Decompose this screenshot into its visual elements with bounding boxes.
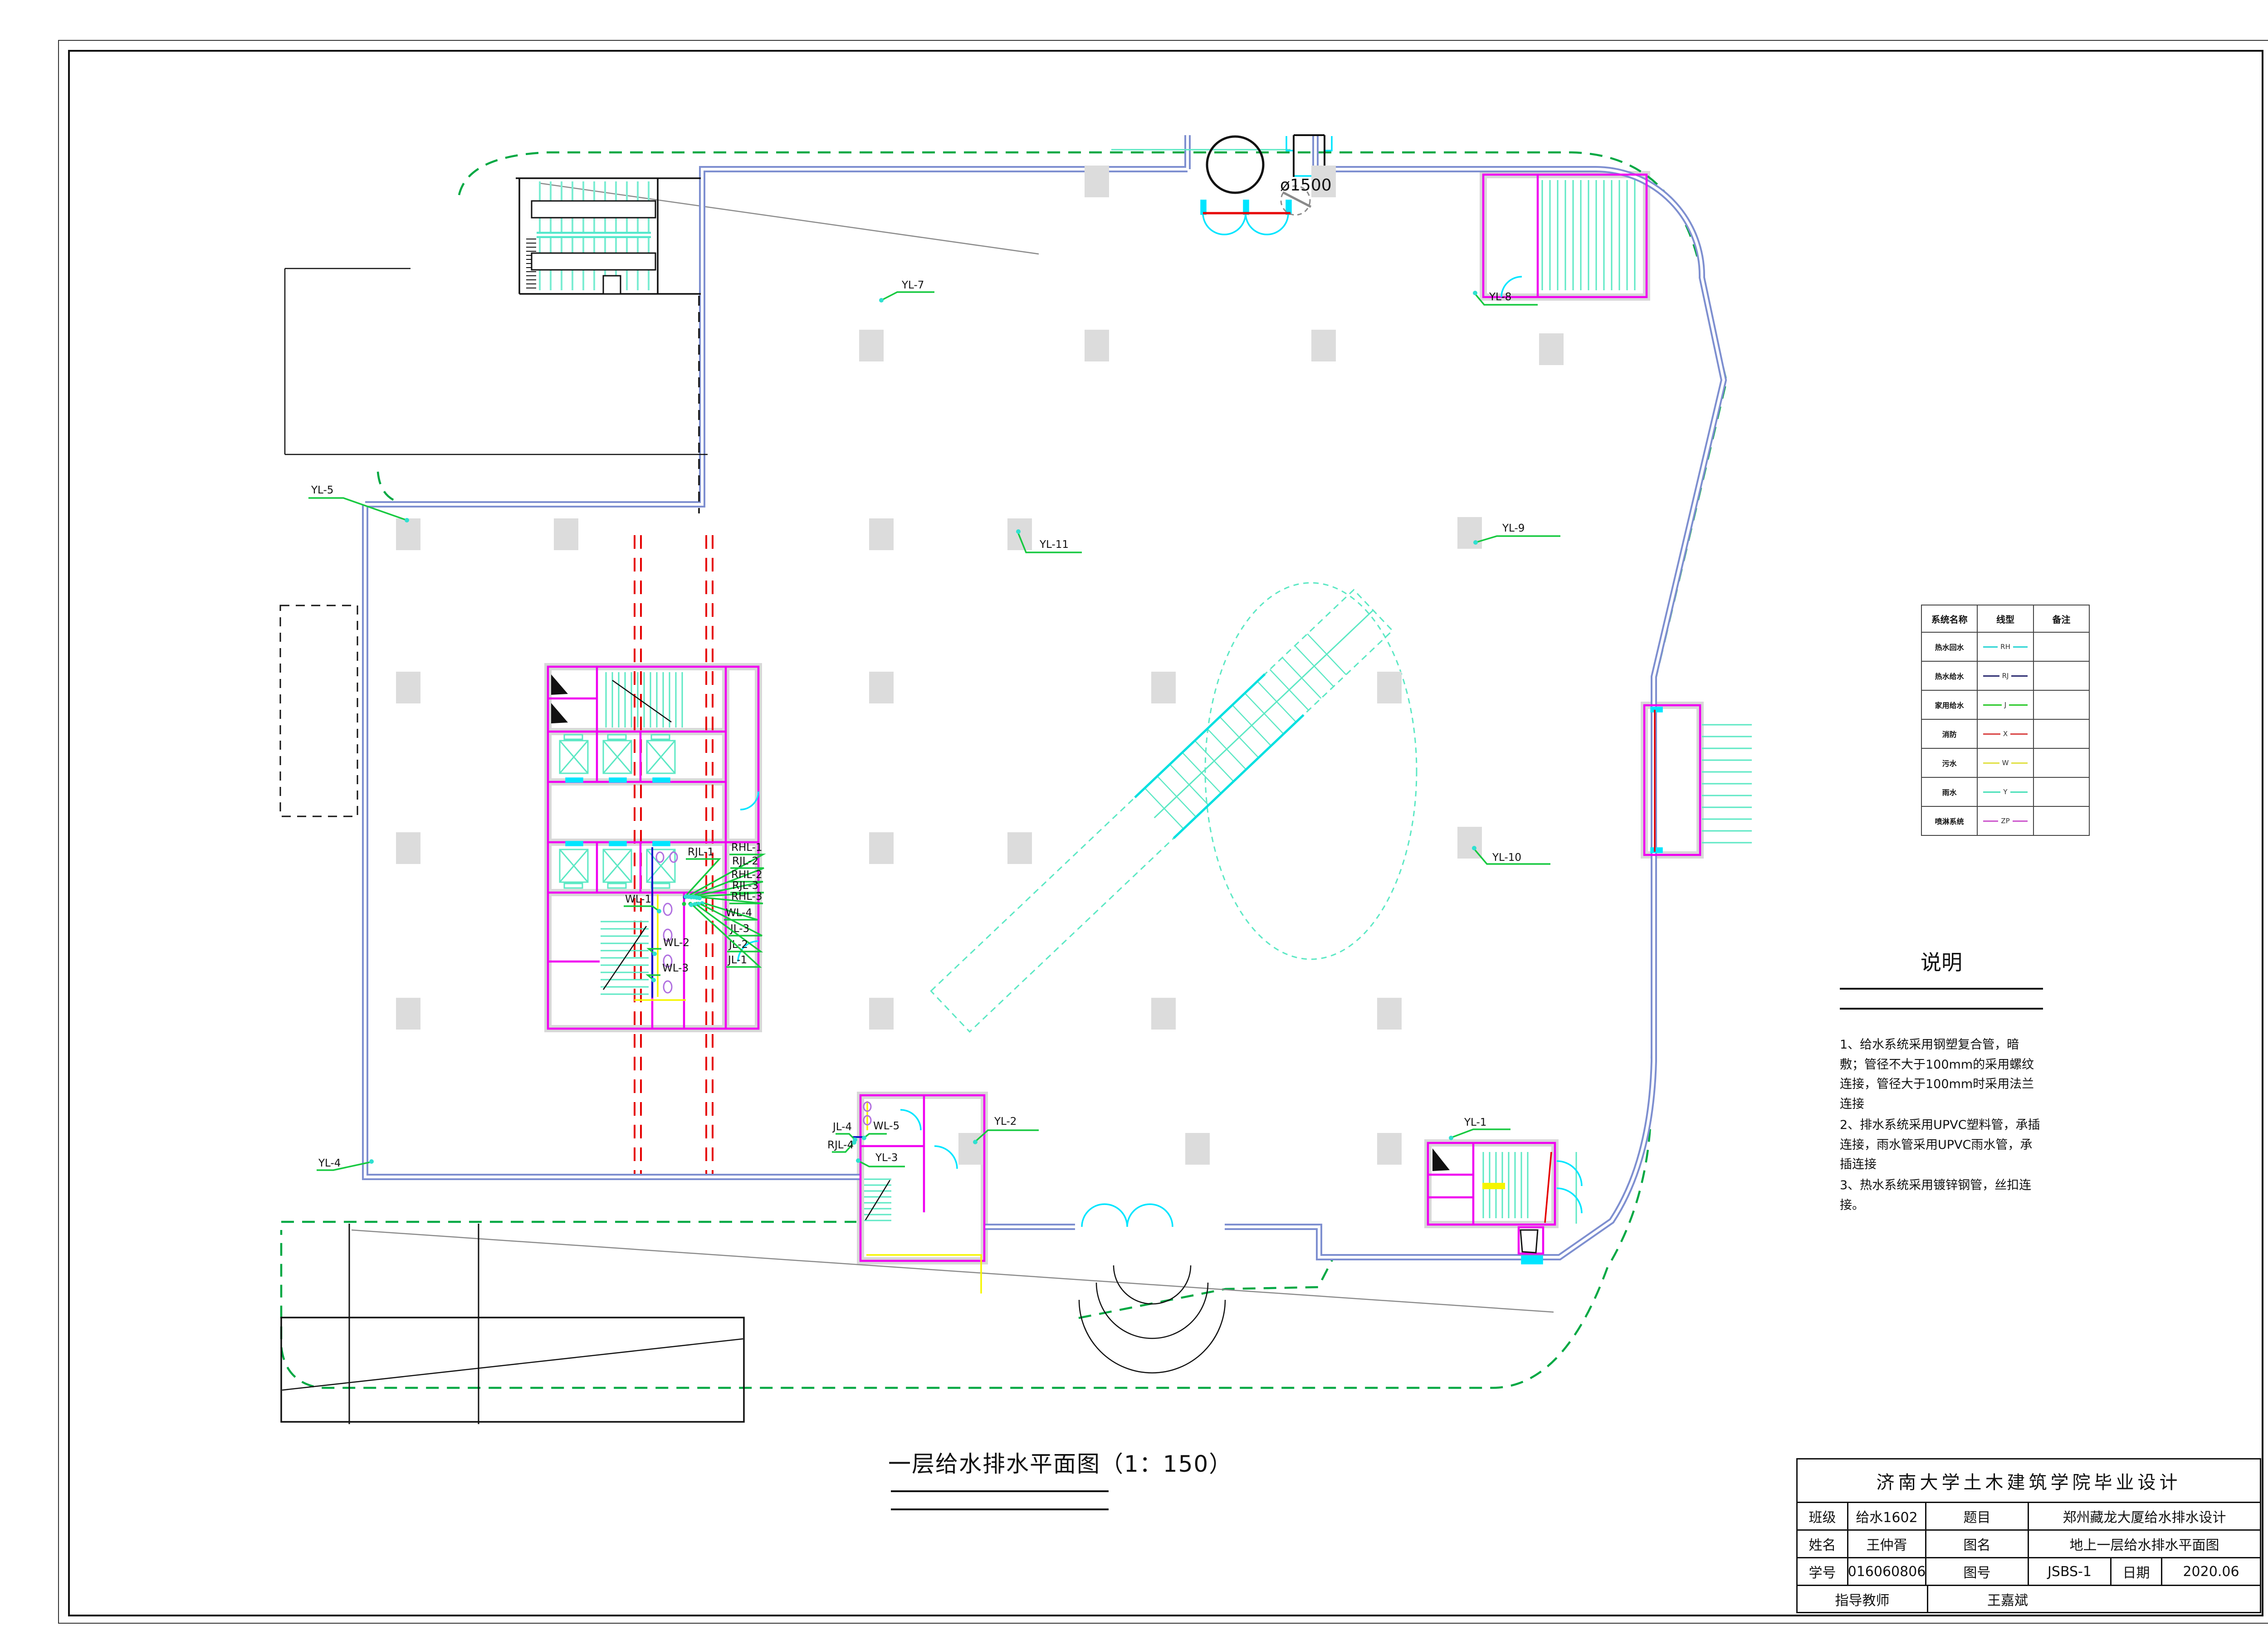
legend-line-segment [1983, 820, 1998, 822]
legend-remark [2033, 632, 2089, 661]
legend-line-segment [2013, 820, 2028, 822]
legend-line-segment [1983, 791, 2000, 793]
legend-line-sample: Y [1977, 777, 2033, 806]
legend-line-segment [2009, 704, 2027, 706]
sheetname-value: 地上一层给水排水平面图 [2029, 1531, 2260, 1557]
studentid-value: 20160608068 [1848, 1558, 1926, 1585]
structural-column [1151, 998, 1176, 1030]
structural-column [1007, 518, 1032, 550]
label-leader-line [1476, 536, 1560, 542]
legend-line-code: Y [2003, 788, 2007, 796]
structural-column [1007, 832, 1032, 864]
plan-labels: YL-7YL-5YL-11YL-9YL-10YL-8YL-1YL-2YL-3YL… [308, 279, 1560, 1170]
sheetname-label: 图名 [1926, 1531, 2029, 1557]
legend-row: 喷淋系统ZP [1921, 806, 2089, 835]
site-gray-lines [352, 183, 1554, 1312]
legend-system-name: 热水回水 [1921, 632, 1977, 661]
legend-line-segment [1983, 675, 1999, 677]
label-leader-line [836, 1134, 855, 1139]
legend-line-segment [2013, 646, 2028, 648]
riser-dot [369, 1159, 374, 1164]
legend-system-name: 消防 [1921, 719, 1977, 748]
riser-dot [1473, 291, 1477, 295]
legend-line-segment [2011, 762, 2027, 764]
pipe-riser-label: RHL-3 [731, 891, 763, 903]
notes-title: 说明 [1840, 946, 2043, 976]
legend-line-segment [2011, 675, 2027, 677]
drawing-title: 一层给水排水平面图（1：150） [888, 1446, 1115, 1479]
legend-remark [2033, 690, 2089, 719]
pipe-riser-label: YL-2 [994, 1116, 1017, 1127]
legend-header-system: 系统名称 [1921, 605, 1977, 632]
red-details [1203, 213, 1655, 1223]
structural-column [1151, 672, 1176, 703]
structural-column [1311, 330, 1336, 361]
pipe-riser-label: RJL-1 [688, 846, 714, 858]
interior-walls [548, 175, 1700, 1261]
legend-line-segment [2010, 733, 2028, 735]
pipe-riser-label: YL-11 [1039, 539, 1069, 551]
pipe-riser-label: YL-10 [1492, 852, 1521, 864]
structural-column [1185, 1133, 1210, 1165]
legend-row: 热水给水RJ [1921, 661, 2089, 690]
legend-line-segment [2010, 791, 2028, 793]
pipe-riser-label: RJL-4 [827, 1139, 854, 1151]
title-block-school: 济南大学土木建筑学院毕业设计 [1798, 1459, 2260, 1503]
elevators [560, 735, 675, 888]
riser-dot [652, 952, 657, 956]
name-value: 王仲胥 [1848, 1531, 1926, 1557]
legend-line-sample: W [1977, 748, 2033, 777]
structural-column [1377, 1133, 1402, 1165]
notes-rule-1 [1840, 988, 2043, 990]
legend-system-name: 热水给水 [1921, 661, 1977, 690]
legend-line-code: ZP [2001, 817, 2009, 825]
atrium-ellipse [1205, 583, 1417, 959]
pipe-riser-label: JL-3 [729, 923, 749, 935]
structural-column [396, 672, 420, 703]
name-label: 姓名 [1798, 1531, 1848, 1557]
legend-line-sample: X [1977, 719, 2033, 748]
legend-line-code: W [2002, 759, 2009, 767]
legend-row: 污水W [1921, 748, 2089, 777]
note-item: 3、热水系统采用镀锌钢管，丝扣连接。 [1840, 1176, 2043, 1215]
structural-column [1085, 166, 1109, 197]
pipe-riser-label: YL-3 [875, 1152, 898, 1164]
riser-dot [689, 903, 694, 907]
pipe-riser-label: WL-5 [873, 1120, 899, 1132]
advisor-label: 指导教师 [1798, 1586, 1928, 1612]
topic-value: 郑州藏龙大厦给水排水设计 [2029, 1503, 2260, 1529]
structural-column [859, 330, 884, 361]
pipe-riser-label: YL-1 [1464, 1117, 1486, 1128]
title-underline-1 [891, 1490, 1109, 1492]
legend-line-sample: ZP [1977, 806, 2033, 835]
legend-line-code: RJ [2002, 672, 2009, 680]
site-boundary [281, 152, 1726, 1388]
pipe-riser-label: JL-4 [832, 1121, 852, 1133]
pipe-riser-label: RJL-3 [732, 880, 758, 892]
class-label: 班级 [1798, 1503, 1848, 1529]
pipe-riser-label: YL-9 [1502, 522, 1525, 534]
structural-column [396, 998, 420, 1030]
class-value: 给水1602 [1848, 1503, 1926, 1529]
legend-row: 热水回水RH [1921, 632, 2089, 661]
topic-label: 题目 [1926, 1503, 2029, 1529]
riser-dot [856, 1158, 860, 1163]
title-block: 济南大学土木建筑学院毕业设计 班级 给水1602 题目 郑州藏龙大厦给水排水设计… [1796, 1458, 2261, 1613]
legend-remark [2033, 719, 2089, 748]
structural-column [396, 518, 420, 550]
riser-dot [1449, 1136, 1453, 1140]
legend-header-remark: 备注 [2033, 605, 2089, 632]
entrance-diameter-label: ø1500 [1280, 176, 1332, 195]
structural-column [554, 518, 578, 550]
riser-dot [879, 298, 884, 303]
annex-structures [280, 178, 744, 1424]
structural-column [1377, 672, 1402, 703]
label-leader-line [1452, 1129, 1510, 1137]
date-value: 2020.06 [2162, 1558, 2260, 1585]
structural-column [869, 998, 894, 1030]
legend-system-name: 喷淋系统 [1921, 806, 1977, 835]
riser-dot [973, 1140, 978, 1144]
sheetno-value: JSBS-1 [2029, 1558, 2112, 1585]
riser-dot [862, 1136, 866, 1140]
structural-column [396, 832, 420, 864]
riser-dot [651, 978, 656, 982]
structural-column [869, 832, 894, 864]
pipe-riser-label: YL-7 [901, 279, 924, 291]
riser-dot [405, 518, 409, 522]
notes-rule-2 [1840, 1008, 2043, 1010]
structural-column [869, 518, 894, 550]
stairs-and-treads [601, 150, 1752, 1224]
pipe-riser-label: WL-3 [662, 962, 689, 974]
legend-line-code: X [2003, 730, 2008, 738]
label-leader-line [865, 1134, 887, 1137]
date-label: 日期 [2112, 1558, 2162, 1585]
exterior-walls [365, 135, 1724, 1257]
notes-list: 1、给水系统采用钢塑复合管，暗敷；管径不大于100mm的采用螺纹连接，管径大于1… [1840, 1035, 2043, 1215]
notes-panel: 说明 1、给水系统采用钢塑复合管，暗敷；管径不大于100mm的采用螺纹连接，管径… [1840, 946, 2043, 1216]
riser-dot [1016, 529, 1021, 534]
pipe-riser-label: YL-4 [318, 1157, 341, 1169]
legend-line-sample: J [1977, 690, 2033, 719]
legend-line-sample: RH [1977, 632, 2033, 661]
pipe-riser-label: RJL-2 [732, 855, 758, 867]
pipe-riser-label: YL-5 [311, 484, 333, 496]
legend-line-code: RH [2000, 643, 2010, 651]
legend-line-sample: RJ [1977, 661, 2033, 690]
riser-dot [1473, 540, 1478, 545]
advisor-value: 王嘉斌 [1928, 1586, 2260, 1612]
legend-line-segment [1983, 762, 1999, 764]
legend-header-linetype: 线型 [1977, 605, 2033, 632]
pipe-riser-label: RHL-1 [731, 842, 763, 854]
studentid-label: 学号 [1798, 1558, 1848, 1585]
legend-system-name: 污水 [1921, 748, 1977, 777]
structural-column [1085, 330, 1109, 361]
structural-column [1377, 998, 1402, 1030]
sheetno-label: 图号 [1926, 1558, 2029, 1585]
entrance-column-circle [1207, 137, 1263, 193]
note-item: 1、给水系统采用钢塑复合管，暗敷；管径不大于100mm的采用螺纹连接，管径大于1… [1840, 1035, 2043, 1114]
legend-table: 系统名称 线型 备注 热水回水RH热水给水RJ家用给水J消防X污水W雨水Y喷淋系… [1921, 605, 2090, 836]
drawing-sheet: YL-7YL-5YL-11YL-9YL-10YL-8YL-1YL-2YL-3YL… [0, 0, 2268, 1640]
pipe-riser-label: WL-2 [663, 937, 689, 949]
legend-line-segment [1983, 733, 2000, 735]
riser-dot [657, 909, 661, 913]
structural-column [1539, 333, 1564, 365]
legend-remark [2033, 748, 2089, 777]
pipe-riser-label: WL-1 [625, 893, 651, 905]
legend-row: 家用给水J [1921, 690, 2089, 719]
legend-remark [2033, 777, 2089, 806]
label-leader-line [881, 292, 934, 300]
escalator [931, 590, 1392, 1031]
pipe-riser-label: RHL-2 [731, 869, 763, 881]
structural-column [1457, 517, 1482, 549]
note-item: 2、排水系统采用UPVC塑料管，承插连接，雨水管采用UPVC雨水管，承插连接 [1840, 1115, 2043, 1175]
legend-line-segment [1983, 704, 2001, 706]
structural-column [869, 672, 894, 703]
pipe-riser-label: YL-8 [1489, 291, 1511, 303]
legend-line-code: J [2004, 701, 2006, 709]
legend-remark [2033, 661, 2089, 690]
riser-dot [1472, 846, 1476, 850]
legend-row: 雨水Y [1921, 777, 2089, 806]
pipe-riser-label: WL-4 [726, 907, 752, 919]
legend-row: 消防X [1921, 719, 2089, 748]
riser-dot [697, 896, 702, 900]
title-underline-2 [891, 1508, 1109, 1510]
pipe-riser-label: JL-1 [727, 954, 747, 966]
legend-line-segment [1983, 646, 1998, 648]
legend-system-name: 家用给水 [1921, 690, 1977, 719]
wall-poche [548, 175, 1700, 1261]
legend-system-name: 雨水 [1921, 777, 1977, 806]
legend-remark [2033, 806, 2089, 835]
